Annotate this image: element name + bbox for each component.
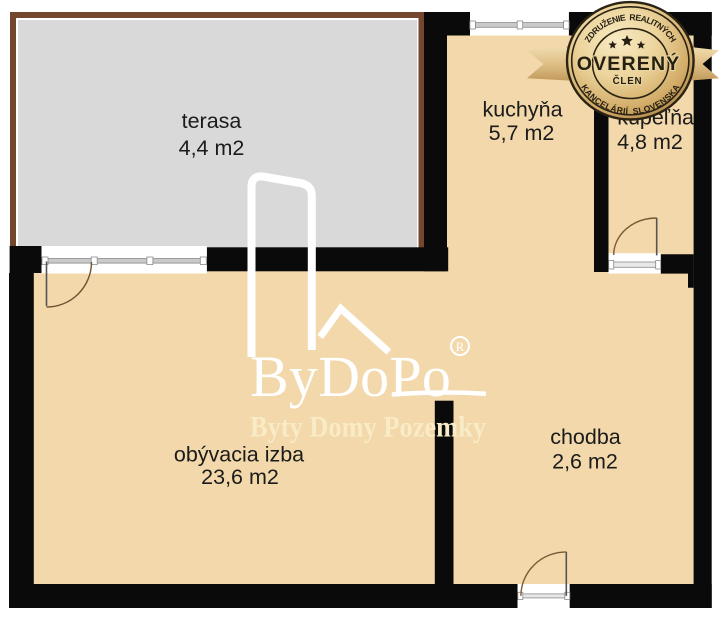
- svg-text:2,6 m2: 2,6 m2: [552, 450, 618, 474]
- svg-text:ByDoPo: ByDoPo: [250, 344, 451, 409]
- svg-text:R: R: [456, 339, 465, 354]
- svg-text:4,8 m2: 4,8 m2: [617, 130, 683, 154]
- svg-text:terasa: terasa: [182, 109, 242, 133]
- svg-text:23,6 m2: 23,6 m2: [201, 465, 279, 489]
- svg-text:4,4 m2: 4,4 m2: [179, 136, 245, 160]
- svg-text:5,7 m2: 5,7 m2: [489, 121, 555, 145]
- svg-text:Byty Domy Pozemky: Byty Domy Pozemky: [250, 411, 486, 444]
- svg-text:ČLEN: ČLEN: [613, 75, 643, 87]
- svg-text:kuchyňa: kuchyňa: [482, 98, 562, 122]
- svg-text:OVERENÝ: OVERENÝ: [577, 51, 681, 75]
- svg-text:chodba: chodba: [550, 425, 621, 449]
- svg-text:obývacia izba: obývacia izba: [174, 443, 304, 467]
